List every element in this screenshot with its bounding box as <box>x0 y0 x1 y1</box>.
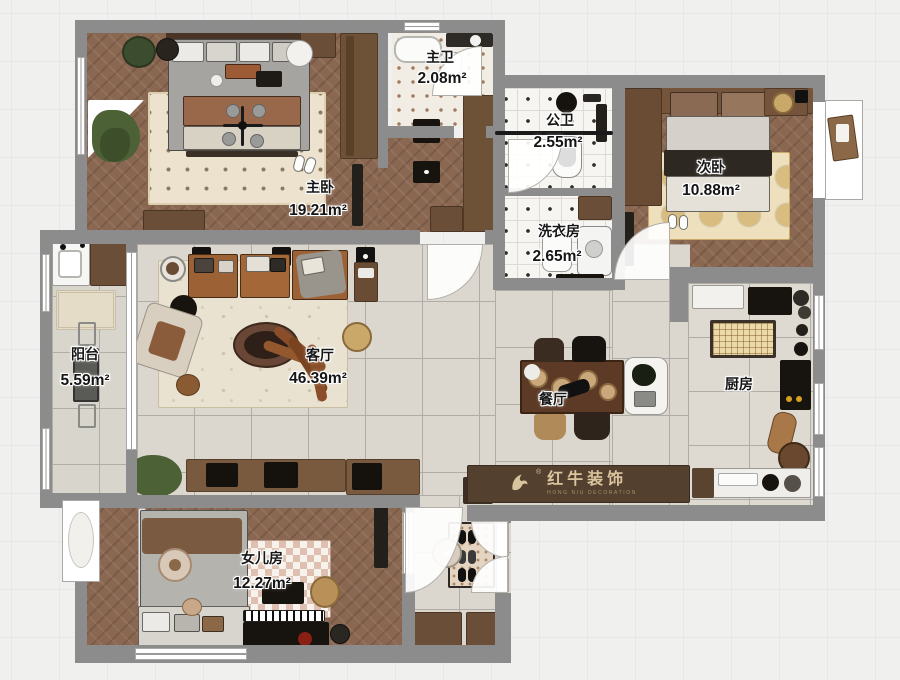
table-center <box>166 262 179 275</box>
bowl <box>793 290 809 306</box>
basin <box>470 35 481 46</box>
teddy-bear <box>182 598 202 616</box>
faucet <box>583 94 601 102</box>
ceiling-fan-blade <box>226 104 240 118</box>
laundry-shelf <box>578 196 612 220</box>
room-label-second-bedroom: 次卧 <box>697 157 725 177</box>
window <box>77 57 85 155</box>
window-seat-cushion <box>68 512 94 568</box>
wall <box>493 278 625 290</box>
drying-rack-frame <box>78 404 96 428</box>
jar <box>794 342 808 356</box>
closet-stool <box>413 161 440 183</box>
flower-center <box>169 559 181 571</box>
sink-tray <box>718 473 758 486</box>
sideboard-with-brand: ® 红牛装饰 HONG NIU DECORATION <box>467 465 690 503</box>
pillow <box>194 258 214 273</box>
kettle <box>762 474 779 491</box>
wall <box>493 75 825 88</box>
table-fan <box>286 40 313 67</box>
ceiling-fan-blade <box>252 104 266 118</box>
room-label-daughters-room: 女儿房 <box>241 548 283 568</box>
room-area-guest-bath: 2.55m² <box>533 134 582 152</box>
round-side-table <box>156 38 179 61</box>
window <box>814 295 824 350</box>
window <box>42 254 50 312</box>
radiator <box>374 506 388 568</box>
shower-set <box>596 104 607 142</box>
room-label-balcony: 阳台 <box>71 344 99 364</box>
balcony-counter <box>90 240 128 286</box>
wall <box>126 230 137 252</box>
brand-watermark: ® 红牛装饰 HONG NIU DECORATION <box>510 471 637 496</box>
knob <box>796 396 802 402</box>
wall <box>670 267 825 283</box>
balcony-sliding-door <box>126 252 137 450</box>
wardrobe <box>620 88 662 206</box>
room-label-guest-bath: 公卫 <box>546 110 574 130</box>
drying-rack-frame <box>78 322 96 346</box>
ceiling-fan-blade <box>250 134 264 148</box>
washer-drum <box>585 240 603 258</box>
wall <box>467 505 825 521</box>
room-label-kitchen: 厨房 <box>725 374 753 394</box>
island-plant <box>632 364 656 386</box>
tv-equipment <box>264 462 298 488</box>
potted-plant <box>122 36 156 68</box>
pillow <box>239 42 270 62</box>
bed-bench <box>186 151 298 157</box>
placemat <box>599 383 617 401</box>
closet-cabinet <box>430 206 463 232</box>
wall <box>493 20 505 88</box>
bed-tray <box>256 71 282 87</box>
pillow <box>142 612 170 632</box>
window <box>135 648 247 660</box>
brand-text-block: 红牛装饰 HONG NIU DECORATION <box>547 471 637 496</box>
vinyl-record <box>298 632 312 646</box>
dining-chair <box>534 414 566 440</box>
desk-paper <box>836 124 849 142</box>
piano-keys <box>243 610 325 622</box>
shoe-cabinet <box>412 612 462 646</box>
radiator <box>352 164 363 226</box>
window <box>814 447 824 497</box>
jar <box>796 324 808 336</box>
wardrobe-shelf <box>346 36 354 156</box>
cabinet <box>692 468 714 498</box>
pillow <box>246 256 270 272</box>
knob <box>786 396 792 402</box>
bull-icon <box>510 471 530 493</box>
closet-wardrobe <box>463 95 495 232</box>
rattan-fan <box>772 92 794 114</box>
pillow <box>202 616 224 632</box>
utility-sink <box>58 250 82 278</box>
shoe-cabinet <box>466 612 498 646</box>
faucet-dot <box>60 244 66 250</box>
room-area-living-room: 46.39m² <box>289 370 347 388</box>
coffee-station <box>748 287 792 315</box>
room-label-dining-room: 餐厅 <box>539 389 567 409</box>
sideboard-inset <box>352 463 382 490</box>
piano-stool <box>330 624 350 644</box>
room-area-balcony: 5.59m² <box>60 372 109 390</box>
slipper <box>679 215 688 230</box>
low-cabinet <box>143 210 205 231</box>
room-area-daughters-room: 12.27m² <box>233 575 291 593</box>
wall <box>40 230 75 244</box>
island-tray <box>634 391 656 407</box>
dining-chair <box>574 412 610 440</box>
books <box>358 268 374 278</box>
wall <box>126 450 137 505</box>
wall <box>75 20 505 33</box>
kitchen-mat <box>710 320 776 358</box>
dining-chair <box>534 338 564 362</box>
fridge <box>692 285 744 309</box>
pillow <box>206 42 237 62</box>
pillow <box>218 260 234 273</box>
rattan-pouf <box>310 576 340 608</box>
room-label-living-room: 客厅 <box>306 345 334 365</box>
window <box>814 383 824 435</box>
speaker <box>795 90 808 103</box>
round-cushion <box>210 74 223 87</box>
bed-blanket <box>142 518 242 554</box>
pillow <box>174 614 200 632</box>
window <box>42 428 50 490</box>
registered-mark: ® <box>536 469 541 476</box>
plate <box>524 364 540 380</box>
room-area-second-bedroom: 10.88m² <box>682 182 740 200</box>
wall <box>378 126 454 138</box>
shoe <box>458 568 466 582</box>
brand-subtitle: HONG NIU DECORATION <box>547 490 637 496</box>
ceiling-fan-blade <box>222 132 236 146</box>
room-label-laundry: 洗衣房 <box>538 221 580 241</box>
brand-name: 红牛装饰 <box>547 471 637 489</box>
room-label-master-bedroom: 主卧 <box>306 177 334 197</box>
cooktop <box>780 360 811 410</box>
tv-equipment <box>206 463 238 487</box>
window <box>404 22 440 31</box>
pillow <box>270 258 286 272</box>
dining-chair <box>572 336 606 362</box>
room-label-master-bath: 主卫 <box>426 47 454 67</box>
bowl <box>798 306 811 319</box>
floor-plan: ® 红牛装饰 HONG NIU DECORATION <box>0 0 900 680</box>
room-area-master-bedroom: 19.21m² <box>289 202 347 220</box>
room-area-laundry: 2.65m² <box>532 248 581 266</box>
wall <box>670 267 688 322</box>
bay-window-opening <box>813 102 825 198</box>
wicker-basket <box>342 322 372 352</box>
shoe <box>468 550 476 564</box>
ceiling-fan-hub <box>238 121 247 130</box>
wall <box>378 33 388 168</box>
room-area-master-bath: 2.08m² <box>417 70 466 88</box>
pot <box>784 475 801 492</box>
pouf <box>176 374 200 396</box>
